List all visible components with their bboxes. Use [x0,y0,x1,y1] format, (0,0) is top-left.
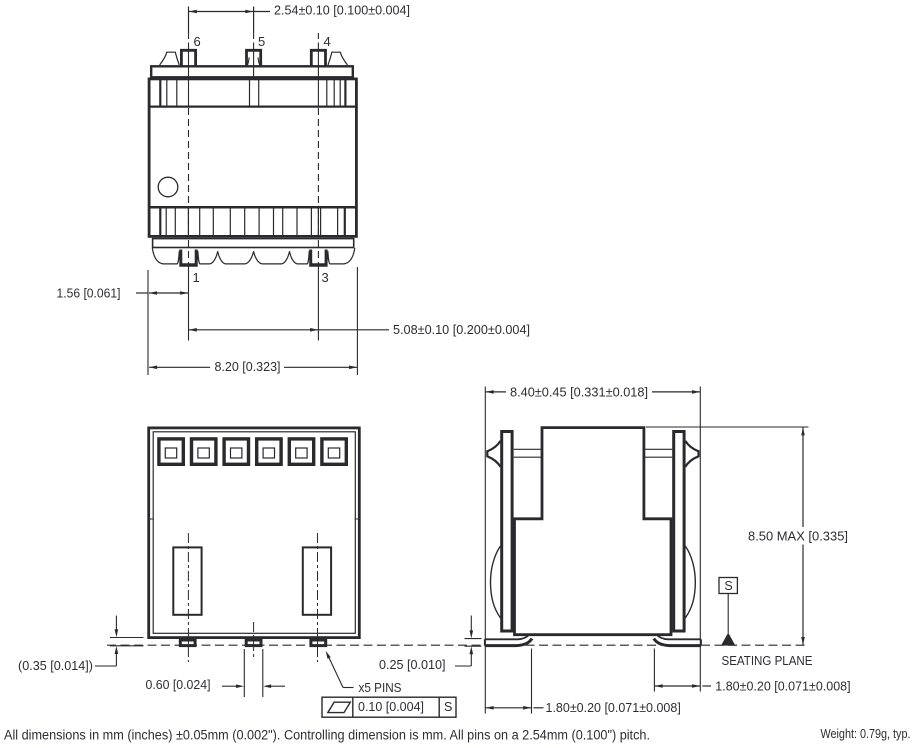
svg-text:S: S [444,700,452,714]
svg-text:5: 5 [258,34,265,49]
svg-text:4: 4 [324,34,331,49]
svg-text:SEATING PLANE: SEATING PLANE [722,654,813,668]
svg-text:Weight: 0.79g, typ.: Weight: 0.79g, typ. [821,726,911,741]
svg-text:1.80±0.20 [0.071±0.008]: 1.80±0.20 [0.071±0.008] [715,679,850,693]
svg-text:8.20 [0.323]: 8.20 [0.323] [215,360,281,374]
svg-text:1.56 [0.061]: 1.56 [0.061] [57,286,121,300]
svg-text:2.54±0.10 [0.100±0.004]: 2.54±0.10 [0.100±0.004] [274,4,410,18]
svg-text:0.10 [0.004]: 0.10 [0.004] [358,700,424,714]
svg-text:1: 1 [193,270,200,285]
svg-text:0.60 [0.024]: 0.60 [0.024] [146,678,211,692]
svg-text:5.08±0.10 [0.200±0.004]: 5.08±0.10 [0.200±0.004] [393,323,530,337]
svg-text:(0.35 [0.014]): (0.35 [0.014]) [18,659,93,673]
svg-text:S: S [724,579,732,593]
svg-text:3: 3 [322,270,329,285]
svg-text:8.50 MAX [0.335]: 8.50 MAX [0.335] [748,529,848,543]
svg-text:All dimensions in mm (inches): All dimensions in mm (inches) ±0.05mm (0… [4,727,650,742]
svg-text:8.40±0.45 [0.331±0.018]: 8.40±0.45 [0.331±0.018] [510,385,648,399]
svg-text:x5 PINS: x5 PINS [359,681,402,695]
svg-text:0.25 [0.010]: 0.25 [0.010] [379,658,446,672]
svg-text:1.80±0.20 [0.071±0.008]: 1.80±0.20 [0.071±0.008] [546,701,681,715]
svg-text:6: 6 [194,34,201,49]
